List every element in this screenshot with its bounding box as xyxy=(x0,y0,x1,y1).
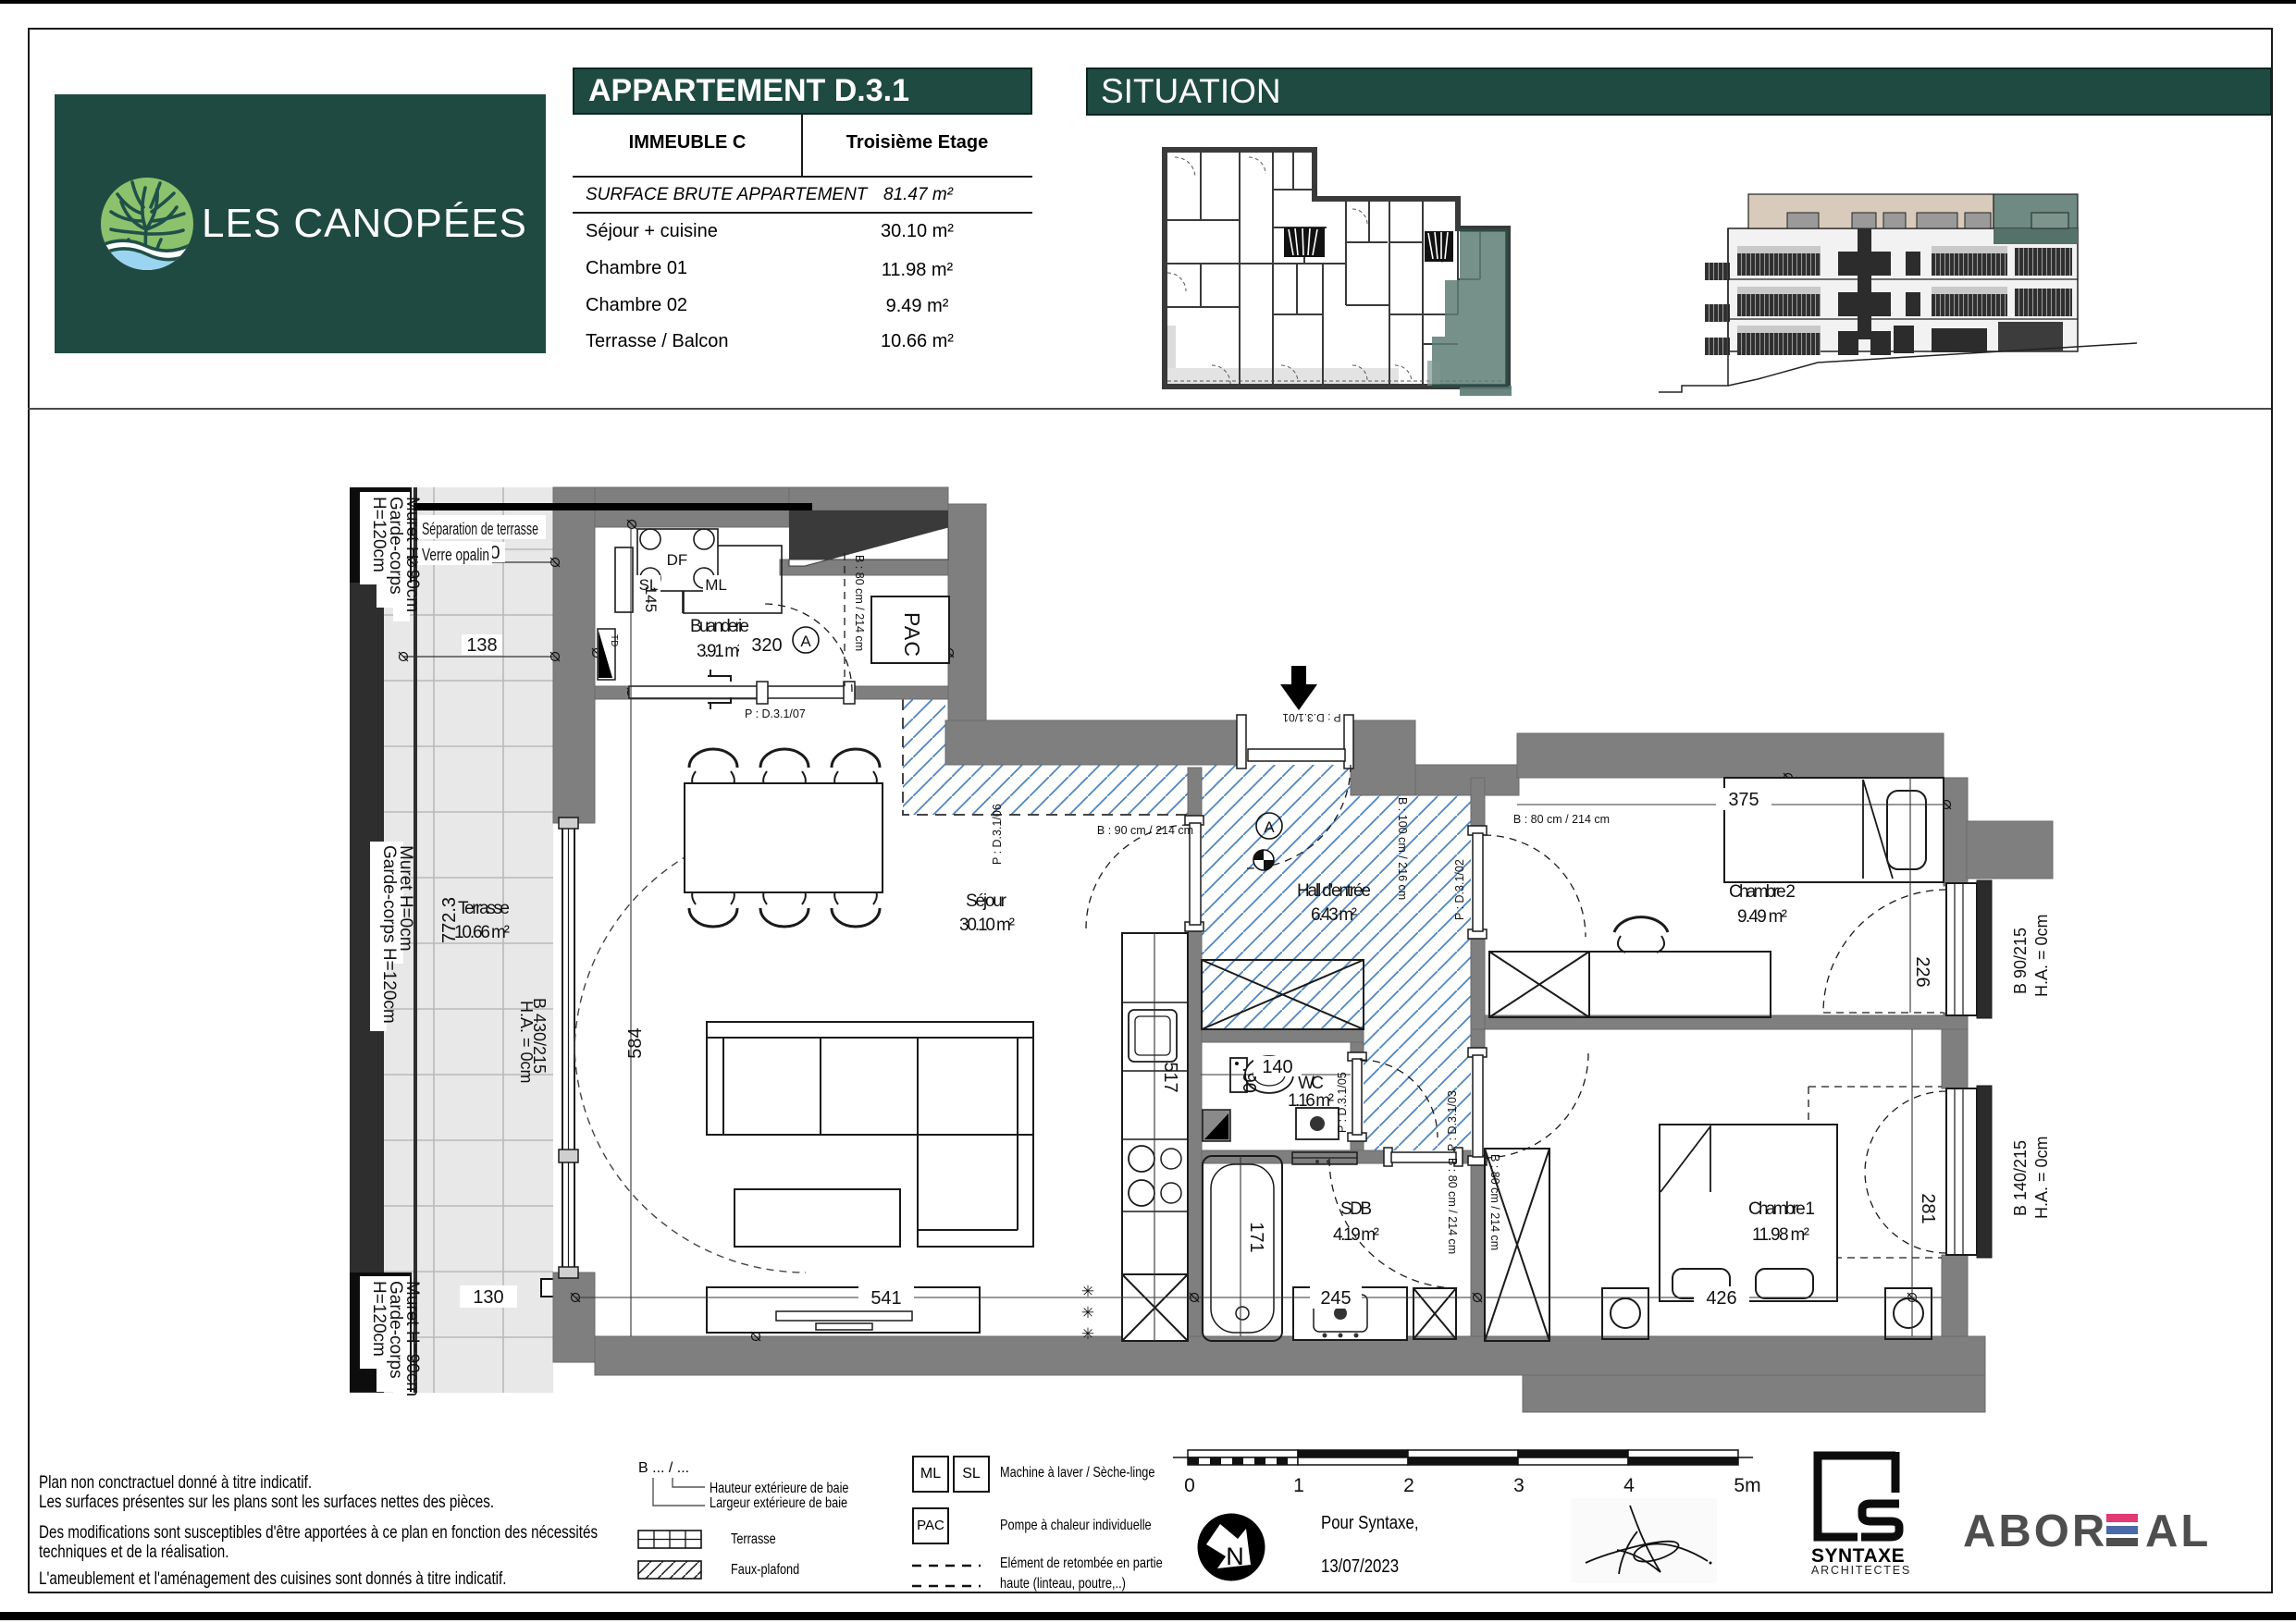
svg-text:5m: 5m xyxy=(1734,1475,1760,1496)
svg-text:B 140/215: B 140/215 xyxy=(2011,1140,2030,1216)
svg-text:P : D.3.1/05: P : D.3.1/05 xyxy=(1336,1072,1349,1133)
svg-text:226: 226 xyxy=(1912,956,1932,987)
svg-text:✳: ✳ xyxy=(1081,1325,1094,1343)
svg-text:✳: ✳ xyxy=(1081,1304,1094,1322)
svg-text:B : 80 cm / 214 cm: B : 80 cm / 214 cm xyxy=(853,555,866,651)
svg-text:P : D.3.1/03: P : D.3.1/03 xyxy=(1446,1090,1459,1151)
svg-text:H.A. = 0cm: H.A. = 0cm xyxy=(2032,914,2051,997)
svg-text:320: 320 xyxy=(751,635,782,656)
svg-text:9.49 m²: 9.49 m² xyxy=(1737,907,1787,927)
svg-text:375: 375 xyxy=(1728,790,1759,810)
svg-text:A: A xyxy=(1264,818,1275,836)
svg-text:B : 100 cm / 216 cm: B : 100 cm / 216 cm xyxy=(1396,797,1409,900)
svg-text:P : D.3.1/01: P : D.3.1/01 xyxy=(1282,711,1340,724)
svg-text:10.66 m²: 10.66 m² xyxy=(454,923,510,942)
svg-text:AL: AL xyxy=(2145,1506,2211,1556)
svg-text:4: 4 xyxy=(1623,1475,1635,1496)
svg-text:426: 426 xyxy=(1706,1288,1736,1309)
svg-text:P : D.3.1/07: P : D.3.1/07 xyxy=(745,707,806,720)
svg-text:11.98 m²: 11.98 m² xyxy=(1752,1225,1809,1245)
svg-text:4.19 m²: 4.19 m² xyxy=(1333,1225,1379,1245)
svg-text:145: 145 xyxy=(642,586,660,612)
svg-text:1.16 m²: 1.16 m² xyxy=(1288,1091,1334,1111)
svg-text:ABOR: ABOR xyxy=(1963,1506,2107,1556)
svg-text:Chambre 1: Chambre 1 xyxy=(1748,1199,1815,1219)
svg-text:B : 90 cm / 214 cm: B : 90 cm / 214 cm xyxy=(1097,824,1193,837)
svg-text:H.A. = 0cm: H.A. = 0cm xyxy=(517,1001,536,1084)
svg-text:541: 541 xyxy=(870,1288,901,1309)
svg-text:Séjour: Séjour xyxy=(966,891,1007,911)
svg-text:171: 171 xyxy=(1246,1222,1266,1252)
svg-text:H.A. = 0cm: H.A. = 0cm xyxy=(2032,1136,2051,1219)
svg-text:Chambre 2: Chambre 2 xyxy=(1729,882,1796,902)
svg-text:P : D.3.1/02: P : D.3.1/02 xyxy=(1453,859,1466,920)
svg-text:3.91 m²: 3.91 m² xyxy=(697,642,743,661)
svg-text:✳: ✳ xyxy=(1081,1283,1094,1300)
svg-text:ML: ML xyxy=(705,576,727,594)
svg-text:584: 584 xyxy=(625,1027,646,1058)
svg-text:TD: TD xyxy=(609,634,619,646)
svg-text:Garde-corps H=120cm: Garde-corps H=120cm xyxy=(379,845,399,1024)
svg-text:Séparation de terrasse: Séparation de terrasse xyxy=(422,519,538,538)
svg-text:DF: DF xyxy=(667,551,688,569)
svg-text:N: N xyxy=(1226,1543,1244,1570)
svg-text:140: 140 xyxy=(1262,1057,1292,1077)
svg-text:130: 130 xyxy=(473,1287,503,1308)
svg-text:281: 281 xyxy=(1918,1193,1938,1223)
svg-text:30.10 m²: 30.10 m² xyxy=(959,916,1015,935)
svg-text:A: A xyxy=(800,633,811,650)
svg-text:1: 1 xyxy=(1293,1475,1304,1496)
svg-text:0: 0 xyxy=(1184,1475,1195,1496)
svg-text:3: 3 xyxy=(1513,1475,1524,1496)
svg-text:2: 2 xyxy=(1403,1475,1414,1496)
svg-text:B : 80 cm / 214 cm: B : 80 cm / 214 cm xyxy=(1513,813,1610,826)
svg-text:Hall d'entrée: Hall d'entrée xyxy=(1297,881,1371,901)
svg-text:Terrasse: Terrasse xyxy=(458,899,510,918)
svg-text:138: 138 xyxy=(466,635,497,656)
svg-text:B : 80 cm / 214 cm: B : 80 cm / 214 cm xyxy=(1446,1158,1459,1254)
svg-text:245: 245 xyxy=(1320,1288,1351,1309)
svg-text:6.43 m²: 6.43 m² xyxy=(1311,905,1357,925)
svg-text:517: 517 xyxy=(1160,1062,1180,1092)
svg-text:B : 80 cm / 214 cm: B : 80 cm / 214 cm xyxy=(1488,1154,1501,1250)
svg-text:SDB: SDB xyxy=(1340,1199,1372,1219)
svg-text:WC: WC xyxy=(1298,1074,1324,1093)
svg-text:H=120cm: H=120cm xyxy=(369,497,389,572)
svg-text:PAC: PAC xyxy=(900,612,924,657)
svg-text:P : D.3.1/06: P : D.3.1/06 xyxy=(991,804,1004,865)
svg-text:H=120cm: H=120cm xyxy=(369,1281,389,1357)
svg-text:Buanderie: Buanderie xyxy=(690,617,749,636)
svg-text:B 90/215: B 90/215 xyxy=(2011,928,2030,994)
svg-text:Verre opalin: Verre opalin xyxy=(422,545,489,564)
